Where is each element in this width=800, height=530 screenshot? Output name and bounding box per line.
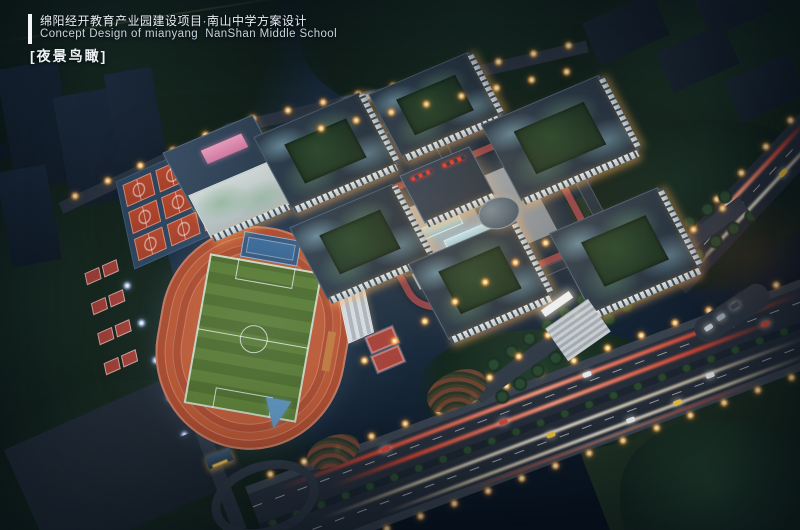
table-tennis-pad	[108, 289, 125, 308]
view-label: [夜景鸟瞰]	[30, 46, 107, 66]
project-title-cn: 绵阳经开教育产业园建设项目·南山中学方案设计	[40, 12, 440, 29]
courtyard	[514, 102, 606, 173]
courtyard	[319, 209, 401, 275]
table-tennis-pad	[91, 297, 108, 316]
project-title-en: Concept Design of mianyang NanShan Middl…	[40, 28, 440, 40]
blue-apron	[261, 397, 292, 431]
parked-car	[730, 301, 740, 310]
car-red	[760, 320, 770, 328]
car-red	[380, 445, 390, 453]
title-accent-bar	[28, 14, 32, 44]
basketball-court	[134, 226, 167, 261]
car-white	[582, 371, 592, 379]
table-tennis-pad	[121, 349, 138, 368]
roof-signage-red	[442, 155, 466, 168]
gym-skylight-pink	[201, 134, 249, 164]
car-white	[626, 416, 636, 424]
night-aerial-render: 绵阳经开教育产业园建设项目·南山中学方案设计 Concept Design of…	[0, 0, 800, 530]
taxi-yellow	[672, 399, 682, 407]
parked-car	[704, 323, 714, 332]
center-circle	[238, 323, 270, 355]
table-tennis-pad	[102, 259, 119, 278]
table-tennis-pad	[84, 267, 101, 286]
car-red	[498, 418, 508, 426]
courtyard	[581, 215, 669, 287]
table-tennis-pad	[97, 327, 114, 346]
table-tennis-pad	[104, 357, 121, 376]
table-tennis-pad	[115, 319, 132, 338]
car-yellow	[778, 168, 788, 178]
parked-car	[716, 313, 726, 322]
roof-signage-red	[410, 169, 432, 181]
